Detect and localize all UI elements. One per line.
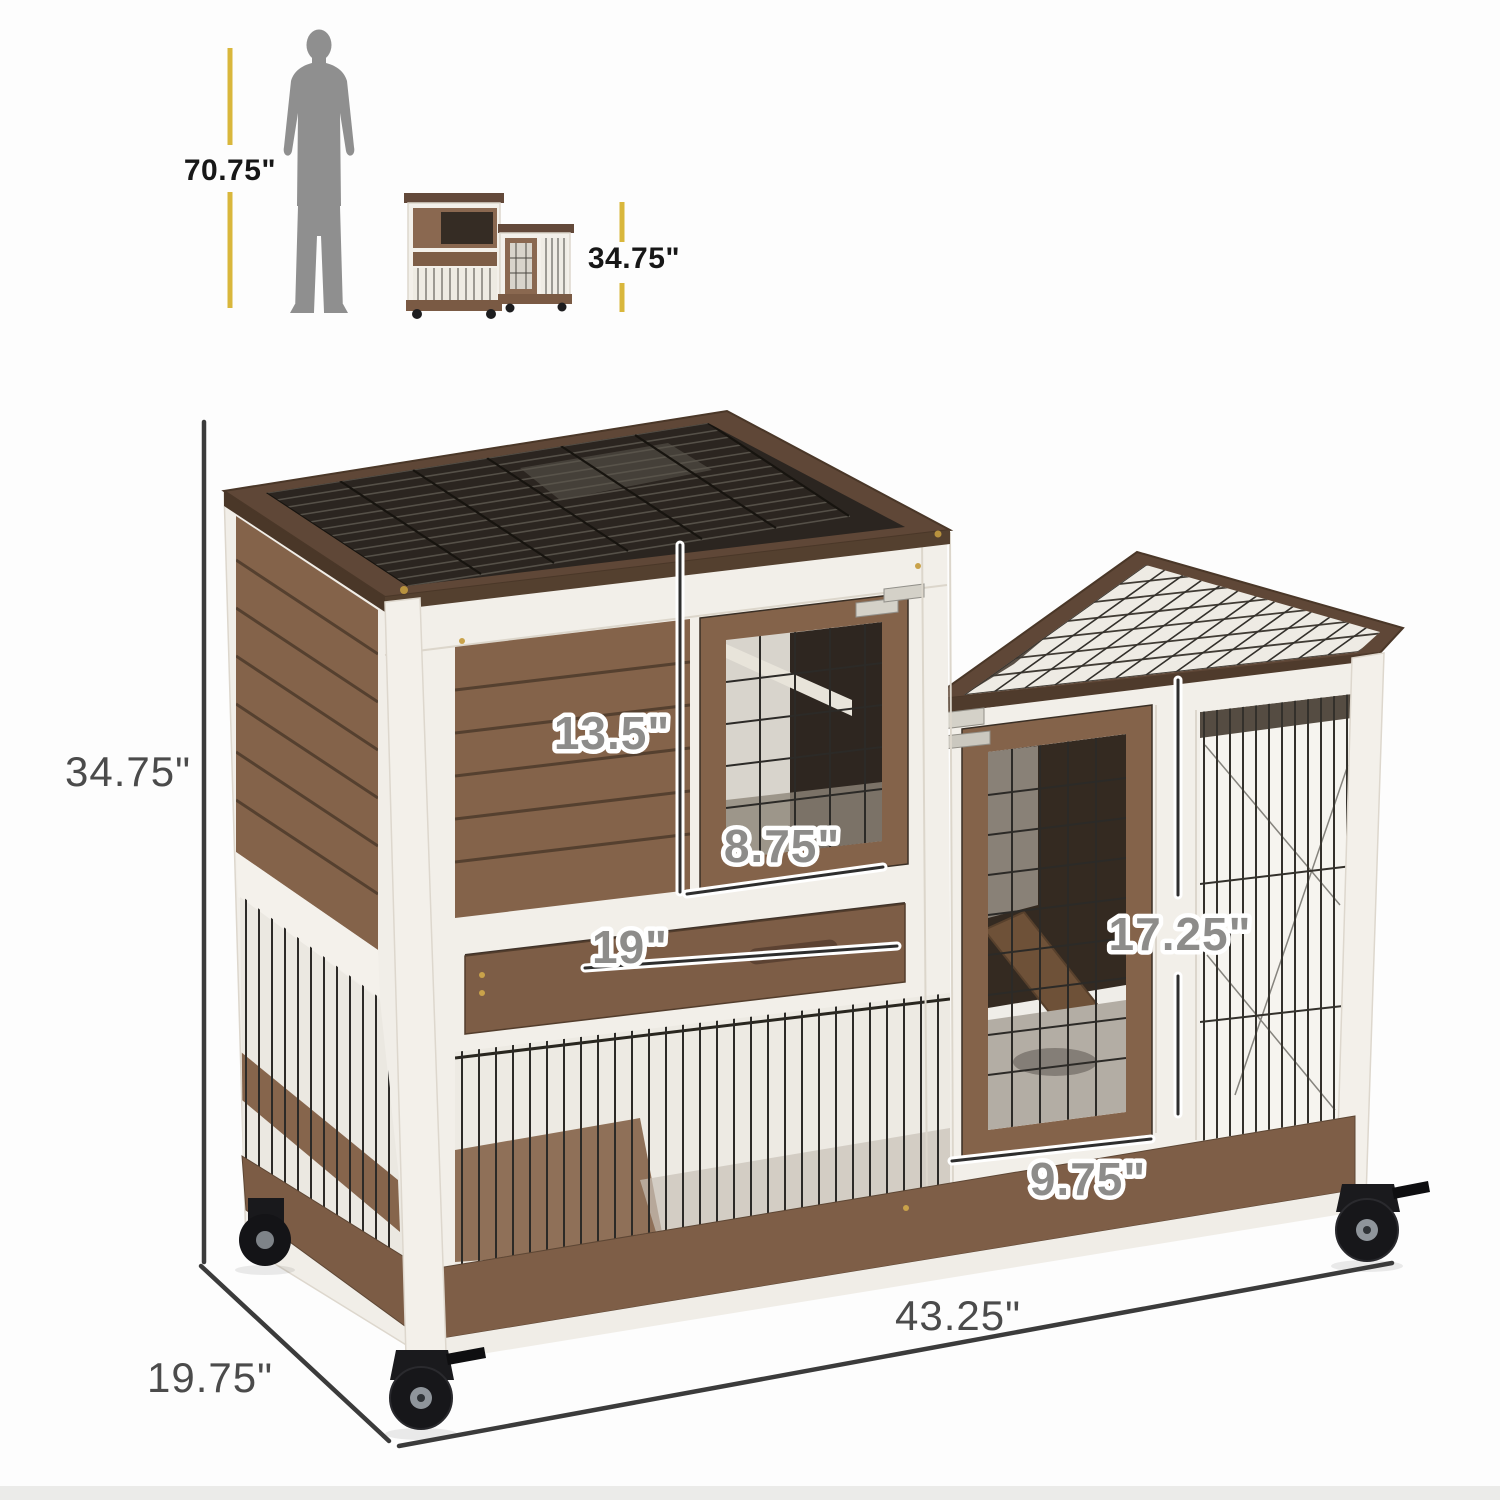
left-unit-front — [385, 530, 953, 1282]
side-door-width-label: 9.75" — [1030, 1153, 1146, 1205]
side-door-height-label: 17.25" — [1109, 908, 1252, 960]
drawer-width-label: 19" — [592, 921, 668, 973]
overall-height-label: 34.75" — [65, 748, 191, 795]
screw-dot — [935, 531, 942, 538]
screw-dot — [400, 586, 408, 594]
screw-dot — [915, 563, 921, 569]
product-dimension-diagram: 70.75" — [0, 0, 1500, 1500]
screw-dot — [903, 1205, 909, 1211]
screw-dot — [459, 638, 465, 644]
overall-depth-label: 19.75" — [147, 1354, 273, 1401]
bottom-edge-strip — [0, 1486, 1500, 1500]
thumbnail-height-label: 34.75" — [588, 242, 680, 275]
diagram-canvas: 70.75" — [0, 0, 1500, 1500]
upper-door-width-label: 8.75" — [724, 820, 840, 872]
overall-width-label: 43.25" — [895, 1292, 1021, 1339]
upper-door-height-label: 13.5" — [554, 707, 670, 759]
screw-dot — [479, 972, 485, 978]
person-height-label: 70.75" — [184, 154, 276, 187]
screw-dot — [479, 990, 485, 996]
front-wood-slats — [455, 619, 690, 918]
